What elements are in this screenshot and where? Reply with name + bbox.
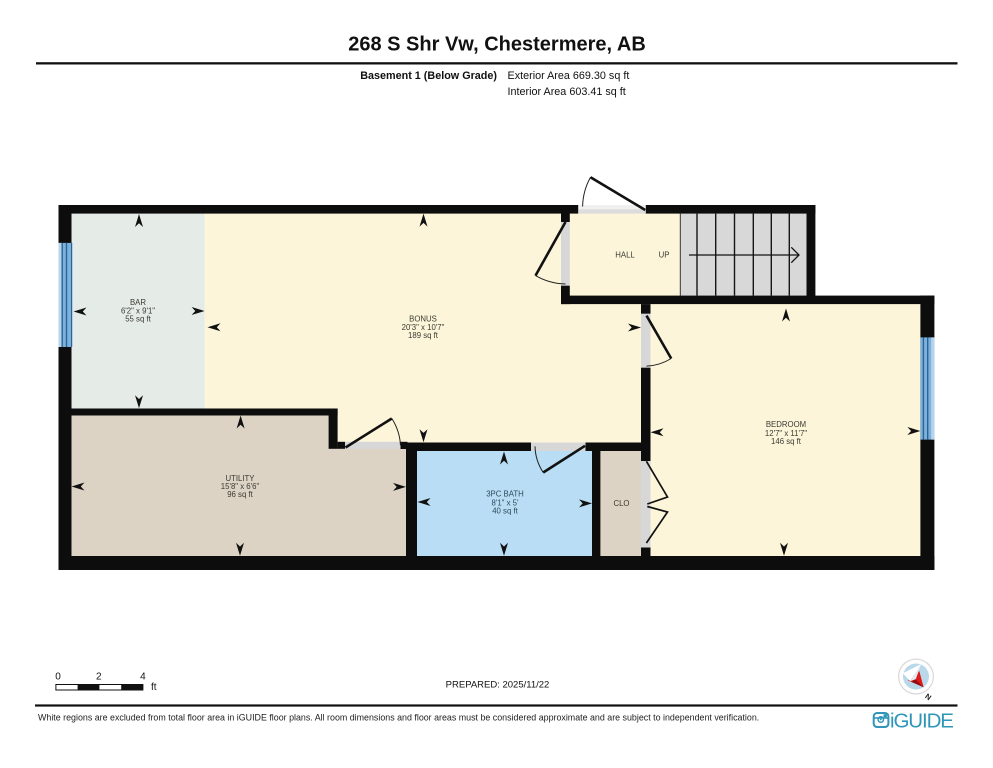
svg-text:ft: ft: [151, 682, 157, 693]
svg-text:146 sq ft: 146 sq ft: [771, 437, 802, 446]
svg-text:CLO: CLO: [613, 499, 629, 508]
svg-text:iGUIDE: iGUIDE: [890, 710, 953, 733]
svg-text:4: 4: [140, 672, 146, 683]
svg-text:Interior Area 603.41 sq ft: Interior Area 603.41 sq ft: [508, 86, 626, 98]
svg-text:UP: UP: [659, 250, 670, 259]
svg-text:N: N: [923, 692, 933, 703]
svg-text:2: 2: [96, 672, 102, 683]
svg-text:40 sq ft: 40 sq ft: [492, 507, 518, 516]
svg-text:BEDROOM: BEDROOM: [766, 420, 806, 429]
svg-text:3PC BATH: 3PC BATH: [486, 490, 524, 499]
svg-text:55 sq ft: 55 sq ft: [125, 314, 151, 323]
svg-text:HALL: HALL: [615, 250, 635, 259]
svg-text:White regions are excluded fro: White regions are excluded from total fl…: [38, 713, 759, 723]
svg-text:Basement 1 (Below Grade): Basement 1 (Below Grade): [360, 70, 497, 82]
svg-text:PREPARED: 2025/11/22: PREPARED: 2025/11/22: [446, 680, 550, 691]
svg-text:0: 0: [55, 672, 61, 683]
svg-text:268 S Shr Vw, Chestermere, AB: 268 S Shr Vw, Chestermere, AB: [348, 34, 646, 56]
svg-text:96 sq ft: 96 sq ft: [227, 490, 253, 499]
svg-text:Exterior Area 669.30 sq ft: Exterior Area 669.30 sq ft: [508, 70, 630, 82]
svg-text:189 sq ft: 189 sq ft: [408, 331, 439, 340]
